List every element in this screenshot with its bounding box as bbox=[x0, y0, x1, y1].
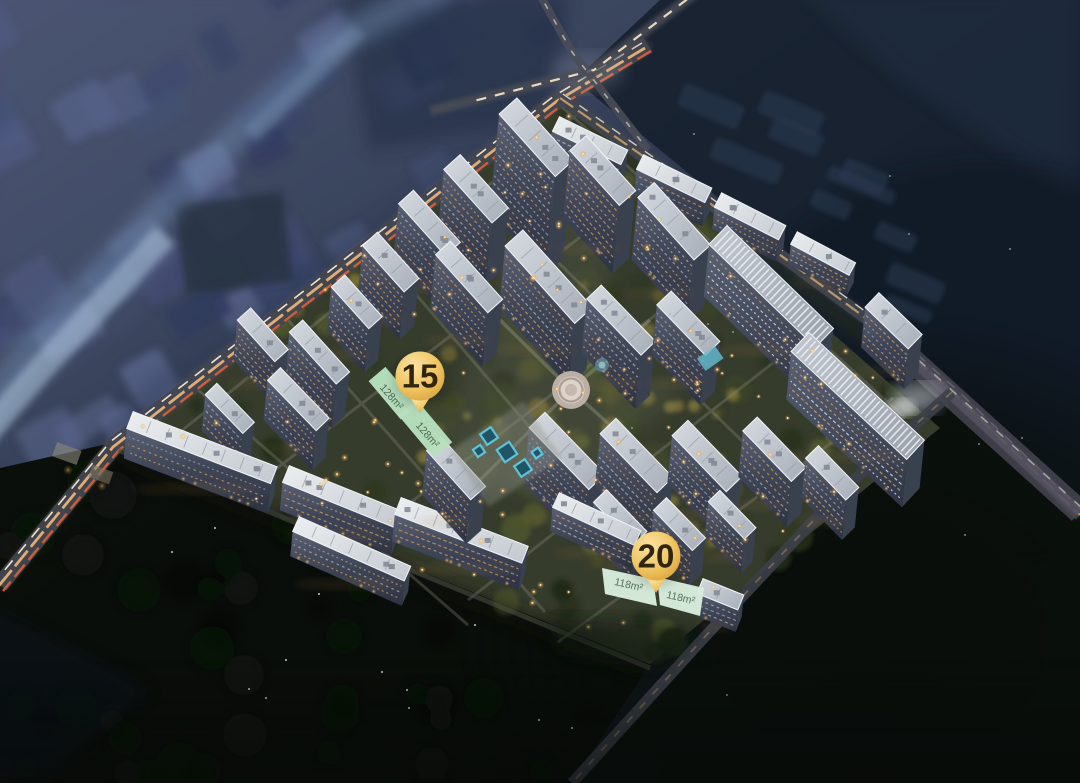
svg-text:15: 15 bbox=[402, 358, 439, 395]
svg-text:20: 20 bbox=[638, 538, 675, 575]
